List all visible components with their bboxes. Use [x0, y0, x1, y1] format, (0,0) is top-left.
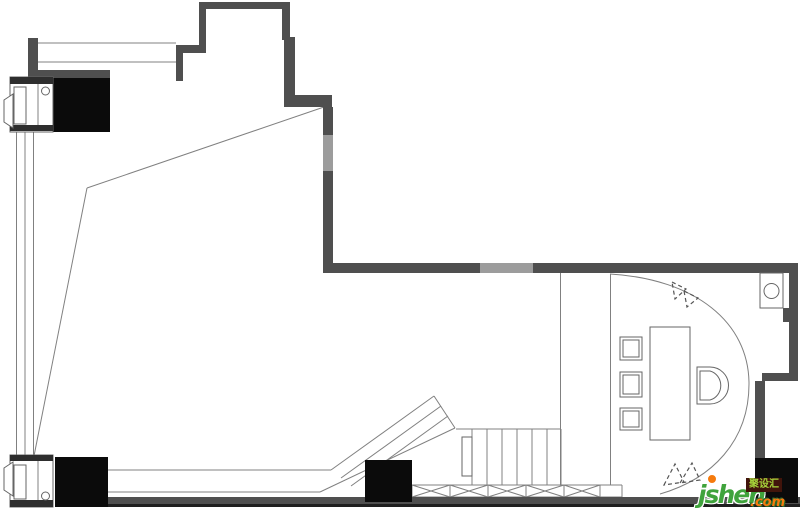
bottom-ledge-lines: [108, 470, 331, 492]
fixture-top-left: [4, 77, 53, 132]
column-bottom-middle: [365, 460, 412, 502]
wall-pier-right: [783, 308, 790, 322]
office-chair: [697, 367, 729, 404]
wall-right: [789, 272, 798, 381]
wall-opening-top: [480, 263, 533, 273]
fixture-flap: [4, 462, 13, 496]
wall-bottom: [55, 497, 800, 504]
staircase-treads: [456, 429, 561, 485]
stair-handrail: [462, 437, 472, 476]
crosshatch-railing: [412, 485, 622, 497]
watermark-tld: .com: [750, 495, 785, 510]
fixture-top-right: [760, 273, 783, 308]
wall-top-bay: [199, 2, 288, 9]
fixture-knob-icon: [42, 492, 50, 500]
fixture-bottom-left: [4, 455, 53, 507]
sightline-diagonals: [34, 107, 324, 456]
watermark-badge: 聚设汇: [746, 478, 782, 492]
window-sill-lines-top: [34, 43, 176, 62]
fixture-knob-icon: [42, 87, 50, 95]
floor-plan-drawing: [0, 0, 800, 511]
column-bottom-left: [55, 457, 108, 507]
watermark: jsheh 聚设汇 .com: [698, 472, 800, 511]
column-top-left: [53, 78, 110, 132]
floor-plan-canvas: jsheh 聚设汇 .com: [0, 0, 800, 511]
window-left: [17, 132, 34, 455]
desk: [650, 327, 690, 440]
side-tables: [620, 337, 642, 430]
fixture-circle-icon: [764, 284, 779, 299]
wall-opening-mid: [323, 135, 333, 171]
wall-room-top: [323, 263, 798, 273]
fixture-flap: [4, 94, 13, 128]
